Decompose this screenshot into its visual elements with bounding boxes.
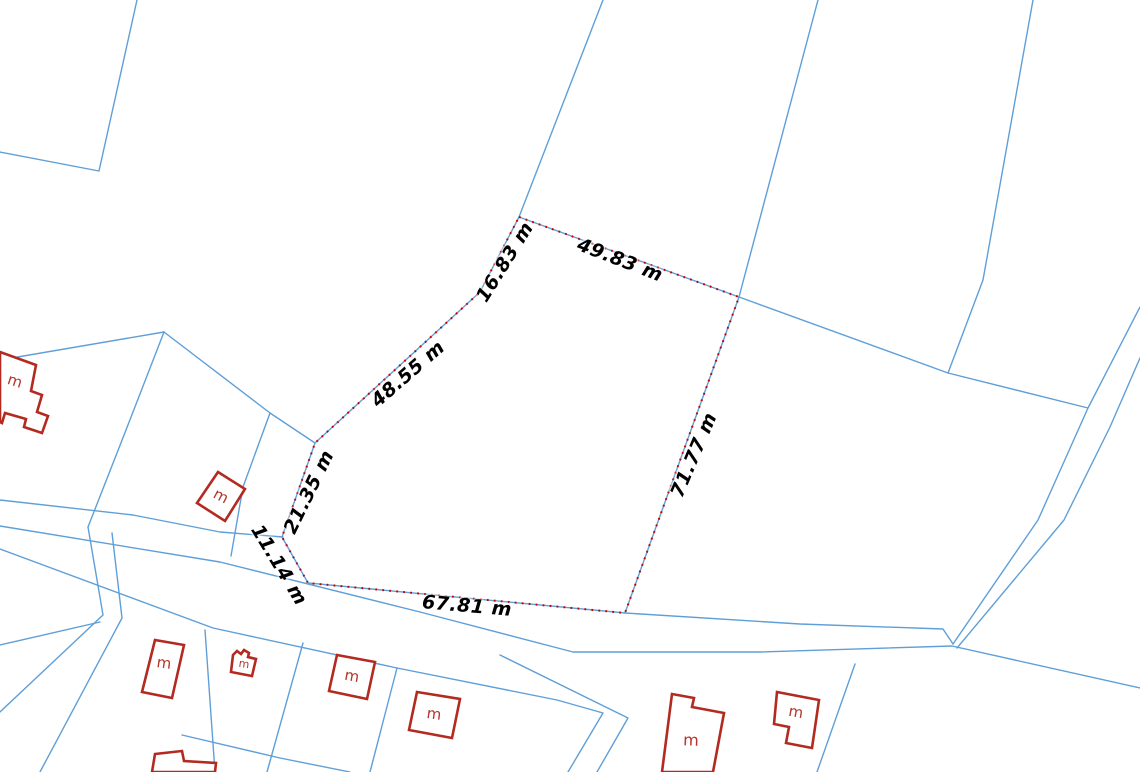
building-label: m [787,702,805,722]
cadastral-boundary-line [500,655,628,772]
cadastral-boundary-line [0,622,100,645]
cadastral-boundary-line [164,332,315,443]
cadastral-boundary-line [953,307,1140,644]
building-label: m [156,653,173,673]
cadastral-boundary-line [948,0,1033,373]
cadastral-boundary-line [739,297,1088,408]
building-outline [152,751,216,772]
building-label: m [426,704,443,724]
cadastral-boundary-line [519,0,603,217]
measured-parcel-polygon[interactable] [282,217,739,613]
building-outline [0,352,48,433]
cadastral-boundary-line [267,643,303,772]
building-label: m [683,730,699,750]
cadastral-boundary-line [370,668,397,772]
cadastral-boundary-line [0,332,164,360]
cadastral-boundary-line [739,0,818,297]
building-label: m [238,657,250,671]
cadastral-boundary-line [957,358,1140,648]
cadastral-boundary-line [88,332,164,527]
building-label: m [343,666,361,686]
cadastral-boundary-line [817,664,855,772]
cadastral-boundary-line [0,0,137,171]
cadastral-boundary-line [205,630,215,772]
parcel-measure-dashes [282,217,739,613]
cadastral-map-svg: mmmmmmmm [0,0,1140,772]
cadastral-boundary-line [625,613,953,644]
cadastral-boundary-line [0,500,283,537]
map-canvas[interactable]: mmmmmmmm 49.83 m71.77 m67.81 m11.14 m21.… [0,0,1140,772]
